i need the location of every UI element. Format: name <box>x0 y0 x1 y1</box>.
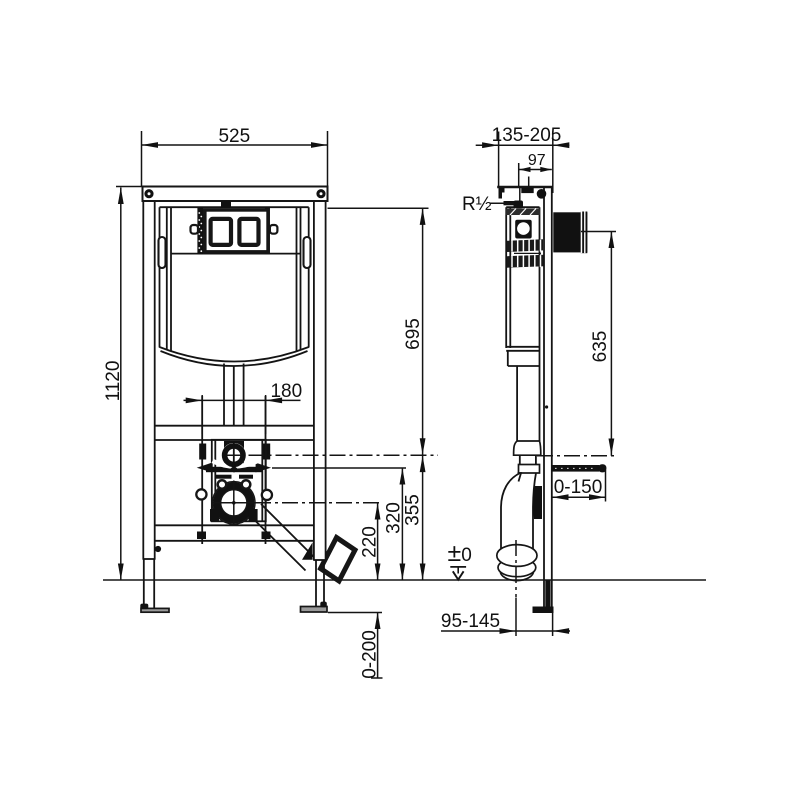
svg-text:220: 220 <box>360 526 381 558</box>
svg-text:0-200: 0-200 <box>360 630 381 679</box>
svg-text:695: 695 <box>403 318 424 350</box>
svg-text:95-145: 95-145 <box>441 611 500 632</box>
svg-text:320: 320 <box>384 502 405 534</box>
svg-text:R½: R½ <box>462 194 492 215</box>
svg-text:525: 525 <box>218 126 250 147</box>
svg-text:635: 635 <box>590 331 611 363</box>
svg-text:135-205: 135-205 <box>492 125 562 146</box>
svg-text:355: 355 <box>403 494 424 526</box>
svg-text:180: 180 <box>270 381 302 402</box>
svg-text:1120: 1120 <box>103 361 124 402</box>
svg-text:97: 97 <box>528 152 546 169</box>
svg-text:0-150: 0-150 <box>554 477 603 498</box>
